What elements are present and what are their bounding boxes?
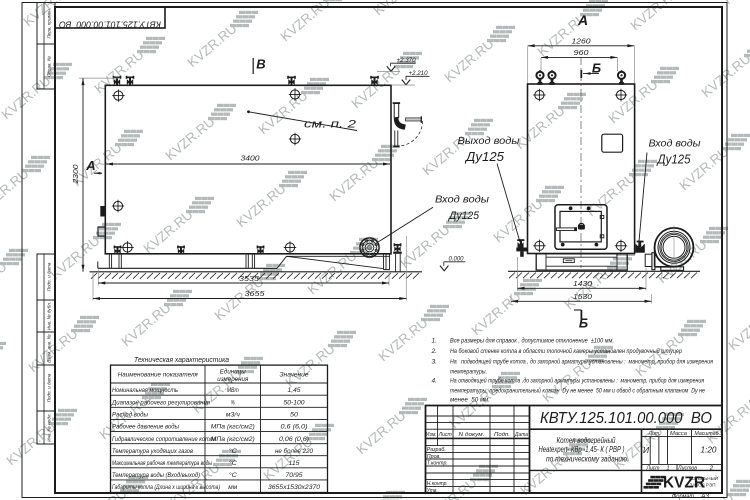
svg-text:2.: 2. xyxy=(431,348,438,355)
svg-text:4.: 4. xyxy=(432,378,438,385)
svg-text:Утв.: Утв. xyxy=(426,488,438,494)
svg-text:температуры, предохранительный: температуры, предохранительный клапан Dy… xyxy=(450,387,705,395)
svg-text:Разраб.: Разраб. xyxy=(427,447,446,453)
svg-text:115: 115 xyxy=(289,460,301,467)
svg-text:Вход воды: Вход воды xyxy=(435,193,489,205)
svg-text:температуры.: температуры. xyxy=(450,369,487,376)
svg-text:не более 220: не более 220 xyxy=(275,447,313,455)
svg-text:мм: мм xyxy=(228,484,238,491)
svg-text:Б: Б xyxy=(579,316,588,331)
svg-text:1430: 1430 xyxy=(573,281,592,288)
svg-text:измерения: измерения xyxy=(217,376,249,383)
svg-text:МПа (кгс/см2): МПа (кгс/см2) xyxy=(211,424,255,431)
svg-text:МВт: МВт xyxy=(227,387,239,394)
svg-text:1260: 1260 xyxy=(572,39,591,46)
svg-text:Ду125: Ду125 xyxy=(656,153,691,167)
svg-text:Изм.: Изм. xyxy=(426,432,437,438)
svg-text:%: % xyxy=(231,399,235,406)
svg-text:Инв. № дубл.: Инв. № дубл. xyxy=(47,302,52,330)
svg-text:менее 50 мм.: менее 50 мм. xyxy=(450,397,490,404)
svg-text:по техническому заданию: по техническому заданию xyxy=(546,455,627,464)
svg-text:И: И xyxy=(643,445,650,455)
svg-text:Вход воды: Вход воды xyxy=(649,137,701,149)
svg-text:Инв. № подл.: Инв. № подл. xyxy=(47,413,52,442)
svg-text:Подп. и дата: Подп. и дата xyxy=(47,262,52,291)
svg-text:А: А xyxy=(577,12,588,28)
svg-text:2300: 2300 xyxy=(73,164,80,184)
svg-text:Единицы: Единицы xyxy=(220,368,246,376)
svg-text:Выход воды: Выход воды xyxy=(458,135,520,147)
svg-text:Подп. и дата: Подп. и дата xyxy=(47,373,52,402)
svg-text:Все размеры для справок , допу: Все размеры для справок , допустимое отк… xyxy=(450,337,614,345)
svg-text:Ду125: Ду125 xyxy=(464,150,504,164)
svg-text:В: В xyxy=(256,57,265,72)
svg-text:0,6 (6,0): 0,6 (6,0) xyxy=(281,424,308,431)
svg-text:0,06 (0,6): 0,06 (0,6) xyxy=(279,436,309,443)
svg-text:Н.контр.: Н.контр. xyxy=(427,481,448,487)
svg-text:Взам. инв. №: Взам. инв. № xyxy=(47,334,52,362)
svg-text:Техническая характеристика: Техническая характеристика xyxy=(134,355,229,364)
svg-text:КВТУ.125.101.00.000 ВО: КВТУ.125.101.00.000 ВО xyxy=(58,19,161,30)
svg-text:На боковой стенке котла в обла: На боковой стенке котла в области топочн… xyxy=(450,347,682,355)
svg-text:Лист: Лист xyxy=(438,432,452,438)
svg-text:1: 1 xyxy=(666,465,669,471)
svg-text:МПа (кгс/см2): МПа (кгс/см2) xyxy=(211,436,255,443)
svg-text:Heatexpert- КВр -1,45- К ( РВР: Heatexpert- КВр -1,45- К ( РВР ) xyxy=(539,445,625,454)
svg-text:0.000: 0.000 xyxy=(449,255,465,262)
svg-text:1,45: 1,45 xyxy=(288,387,302,394)
svg-text:Масштаб: Масштаб xyxy=(695,431,720,437)
svg-text:3655х1530х2370: 3655х1530х2370 xyxy=(268,484,321,491)
svg-text:3.: 3. xyxy=(432,359,438,366)
svg-text:На отводящей трубе котла ,до з: На отводящей трубе котла ,до запорной ар… xyxy=(450,377,704,385)
svg-text:3535: 3535 xyxy=(239,276,259,283)
svg-text:Ду125: Ду125 xyxy=(447,210,480,222)
svg-text:70/95: 70/95 xyxy=(286,472,304,479)
svg-text:А: А xyxy=(85,158,95,173)
svg-text:Б: Б xyxy=(592,60,601,75)
svg-text:Температура уходящих газов: Температура уходящих газов xyxy=(112,447,194,455)
svg-text:Гидравлическое сопротивление к: Гидравлическое сопротивление котла xyxy=(112,435,216,443)
svg-text:Справ. №: Справ. № xyxy=(47,56,52,77)
svg-text:50: 50 xyxy=(290,412,299,419)
svg-text:Пров.: Пров. xyxy=(427,454,441,460)
svg-text:50-100: 50-100 xyxy=(284,399,306,406)
svg-text:КВТУ.125.101.00.000 ВО: КВТУ.125.101.00.000 ВО xyxy=(540,410,712,427)
svg-text:Подп.: Подп. xyxy=(494,432,510,438)
svg-text:Рабочее давление воды: Рабочее давление воды xyxy=(112,423,179,431)
svg-text:Котел водогрейный: Котел водогрейный xyxy=(557,436,616,445)
svg-text:Номинальная мощность: Номинальная мощность xyxy=(112,387,178,394)
svg-text:Максимальная рабочая температу: Максимальная рабочая температура воды xyxy=(112,459,212,467)
svg-text:На подводящей трубе котла ,: На подводящей трубе котла , до запорной … xyxy=(450,358,713,366)
svg-text:Перв. примен.: Перв. примен. xyxy=(47,8,52,39)
svg-text:3400: 3400 xyxy=(241,154,261,163)
svg-text:Значение: Значение xyxy=(280,372,309,379)
svg-text:N докум.: N докум. xyxy=(459,432,485,438)
svg-text:1:20: 1:20 xyxy=(701,446,718,455)
svg-text:3655: 3655 xyxy=(245,291,265,298)
svg-text:Т.контр.: Т.контр. xyxy=(427,461,448,467)
svg-text:Диапазон рабочего регулировани: Диапазон рабочего регулирования xyxy=(111,398,211,406)
svg-text:А3: А3 xyxy=(700,494,710,500)
svg-text:Габариты котла (Длина х ширина: Габариты котла (Длина х ширина х высота) xyxy=(112,483,220,491)
svg-text:м3/ч: м3/ч xyxy=(226,412,241,419)
svg-text:Расход воды: Расход воды xyxy=(112,411,148,419)
svg-text:Формат: Формат xyxy=(672,494,694,500)
svg-text:°С: °С xyxy=(229,471,237,479)
svg-text:КОТЕЛЬНЫЙ: КОТЕЛЬНЫЙ xyxy=(689,474,718,481)
svg-text:Дата: Дата xyxy=(514,432,528,438)
svg-text:°С: °С xyxy=(229,459,237,467)
svg-text:1530: 1530 xyxy=(573,294,592,301)
svg-text:Лит.: Лит. xyxy=(648,431,661,437)
svg-text:ЗАВОД РЭП: ЗАВОД РЭП xyxy=(690,483,716,488)
svg-text:Листов: Листов xyxy=(677,465,697,471)
svg-text:+2.210: +2.210 xyxy=(409,70,429,77)
svg-text:Наименование показателя: Наименование показателя xyxy=(118,372,199,379)
svg-text:Лист: Лист xyxy=(646,465,660,471)
svg-text:Масса: Масса xyxy=(670,431,687,437)
svg-text:Температура воды (Вход/выход): Температура воды (Вход/выход) xyxy=(112,471,200,479)
svg-text:+2.370: +2.370 xyxy=(397,57,417,64)
svg-text:°С: °С xyxy=(229,447,237,455)
svg-text:1.: 1. xyxy=(432,338,438,345)
svg-text:960: 960 xyxy=(574,50,589,57)
svg-text:см. п. 2: см. п. 2 xyxy=(304,119,356,131)
